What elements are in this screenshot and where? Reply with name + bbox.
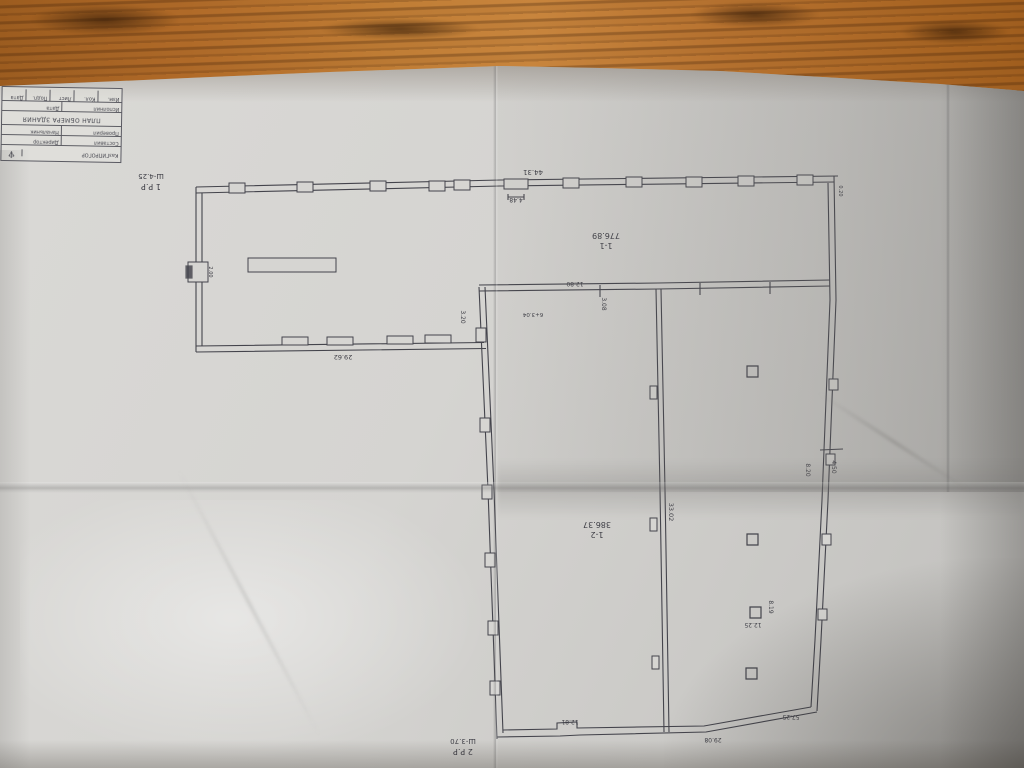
- column-symbol: [747, 366, 758, 377]
- window-symbols: [188, 175, 838, 695]
- room-2-area: 386.37: [583, 520, 611, 529]
- floor-plan-drawing: 1 Р.Р Ш-4.25 2 Р.Р Ш-3.70 1-1 776.89 1-2…: [0, 0, 1024, 768]
- window-symbol: [429, 181, 445, 191]
- stamp-title-row: ПЛАН ОБМЕРА ЗДАНИЯ: [2, 110, 121, 126]
- dim-200: 2.00: [207, 266, 213, 277]
- dim-308: 3.08: [600, 297, 607, 311]
- door-opening: [650, 386, 657, 399]
- window-symbol: [425, 335, 451, 343]
- window-symbol: [370, 181, 386, 191]
- room-1-area: 776.89: [592, 231, 620, 240]
- level-mark-1-name: 1 Р.Р: [141, 182, 161, 191]
- stamp-cell: Кол.: [73, 90, 97, 101]
- window-symbol: [482, 485, 492, 499]
- trident-logo: ♆: [1, 147, 21, 159]
- level-mark-2: 2 Р.Р Ш-3.70: [450, 737, 476, 756]
- window-symbol: [563, 178, 579, 188]
- stamp-meta-row: Изм. Кол. Лист Подп. Дата: [2, 89, 121, 102]
- stamp-cell: Дата: [2, 101, 61, 111]
- door-opening: [650, 518, 657, 531]
- room-2-label: 1-2 386.37: [583, 520, 611, 539]
- window-symbol: [454, 180, 470, 190]
- level-mark-2-elevation: Ш-3.70: [450, 737, 476, 745]
- dim-note: 6+3.04: [522, 311, 543, 317]
- dim-820: 8.20: [804, 463, 811, 477]
- stamp-cell: Лист: [49, 90, 73, 101]
- column-symbol: [747, 534, 758, 545]
- pilaster-symbol: [829, 379, 838, 390]
- stamp-cell: Директор: [2, 135, 61, 145]
- room-1-id: 1-1: [599, 241, 612, 250]
- wood-knot: [690, 2, 820, 28]
- stamp-cell: Проверил: [61, 126, 121, 136]
- photo-of-floor-plan: 1 Р.Р Ш-4.25 2 Р.Р Ш-3.70 1-1 776.89 1-2…: [0, 0, 1024, 768]
- stamp-cell: Подп.: [25, 89, 49, 100]
- stamp-names-row-a: Составил Директор: [2, 134, 121, 146]
- window-symbol: [488, 621, 498, 635]
- dim-020: 0.20: [837, 185, 843, 196]
- window-symbol: [282, 337, 308, 345]
- window-symbol: [476, 328, 486, 342]
- column-symbols: [186, 266, 761, 679]
- wall-left-lower: [479, 287, 503, 739]
- room-1-label: 1-1 776.89: [592, 231, 620, 250]
- stamp-exec-row: Исполнил Дата: [2, 100, 121, 112]
- window-symbol: [797, 175, 813, 185]
- dim-320: 3.20: [459, 310, 466, 324]
- room-2-id: 1-2: [590, 530, 603, 539]
- annotations: 1 Р.Р Ш-4.25 2 Р.Р Ш-3.70 1-1 776.89 1-2…: [138, 168, 843, 756]
- dim-450: 4.50: [830, 460, 837, 474]
- window-symbol: [229, 183, 245, 193]
- stamp-cell: Дата: [2, 89, 25, 100]
- stamp-logo-row: КазГИПРОГОР ♆: [1, 144, 120, 162]
- legend-box: [248, 258, 336, 272]
- stamp-cell: Исполнил: [61, 102, 121, 112]
- dim-mid-wall: 12.80: [566, 280, 583, 287]
- window-symbol: [626, 177, 642, 187]
- wall-right: [811, 176, 836, 711]
- dim-5725: 57.25: [782, 713, 799, 720]
- title-block: КазГИПРОГОР ♆ Составил Директор Проверил…: [0, 86, 122, 163]
- wood-knot: [900, 20, 1010, 44]
- dim-3302: 33.02: [667, 503, 675, 522]
- level-mark-1-elevation: Ш-4.25: [138, 172, 164, 180]
- door-opening: [652, 656, 659, 669]
- window-symbol: [485, 553, 495, 567]
- wood-knot: [320, 18, 480, 40]
- stamp-cell: Начальник: [2, 125, 61, 135]
- stamp-cell: Изм.: [97, 91, 121, 102]
- stamp-drawing-title: ПЛАН ОБМЕРА ЗДАНИЯ: [2, 111, 121, 126]
- door-leaf: [186, 266, 192, 278]
- pilaster-symbol: [822, 534, 831, 545]
- paper-sheet: 1 Р.Р Ш-4.25 2 Р.Р Ш-3.70 1-1 776.89 1-2…: [0, 0, 1024, 768]
- window-symbol: [738, 176, 754, 186]
- stamp-cell: Составил: [61, 136, 121, 146]
- wood-knot: [30, 4, 180, 36]
- stamp-names-row-b: Проверил Начальник: [2, 124, 121, 136]
- dim-top-opening: 4.48: [509, 196, 523, 203]
- dim-2908: 29.08: [704, 736, 721, 743]
- window-symbol: [480, 418, 490, 432]
- dim-819: 8.19: [767, 600, 774, 614]
- column-symbol: [750, 607, 761, 618]
- window-symbol: [327, 337, 353, 345]
- wall-bottom-lower: [497, 707, 817, 737]
- window-symbol: [387, 336, 413, 344]
- window-symbol: [297, 182, 313, 192]
- dim-top-width: 44.31: [523, 168, 543, 176]
- window-symbol: [686, 177, 702, 187]
- window-symbol: [490, 681, 500, 695]
- level-mark-2-name: 2 Р.Р: [453, 747, 473, 756]
- stamp-org-name: КазГИПРОГОР: [21, 149, 120, 158]
- dim-2962: 29.62: [334, 353, 353, 361]
- dimension-ticks: [508, 194, 843, 450]
- dim-1225: 12.25: [744, 621, 761, 628]
- dim-1281: 12.81: [561, 718, 578, 725]
- pilaster-symbol: [818, 609, 827, 620]
- wall-mid-horizontal: [479, 280, 830, 291]
- level-mark-1: 1 Р.Р Ш-4.25: [138, 172, 164, 191]
- column-symbol: [746, 668, 757, 679]
- window-symbol: [504, 179, 528, 189]
